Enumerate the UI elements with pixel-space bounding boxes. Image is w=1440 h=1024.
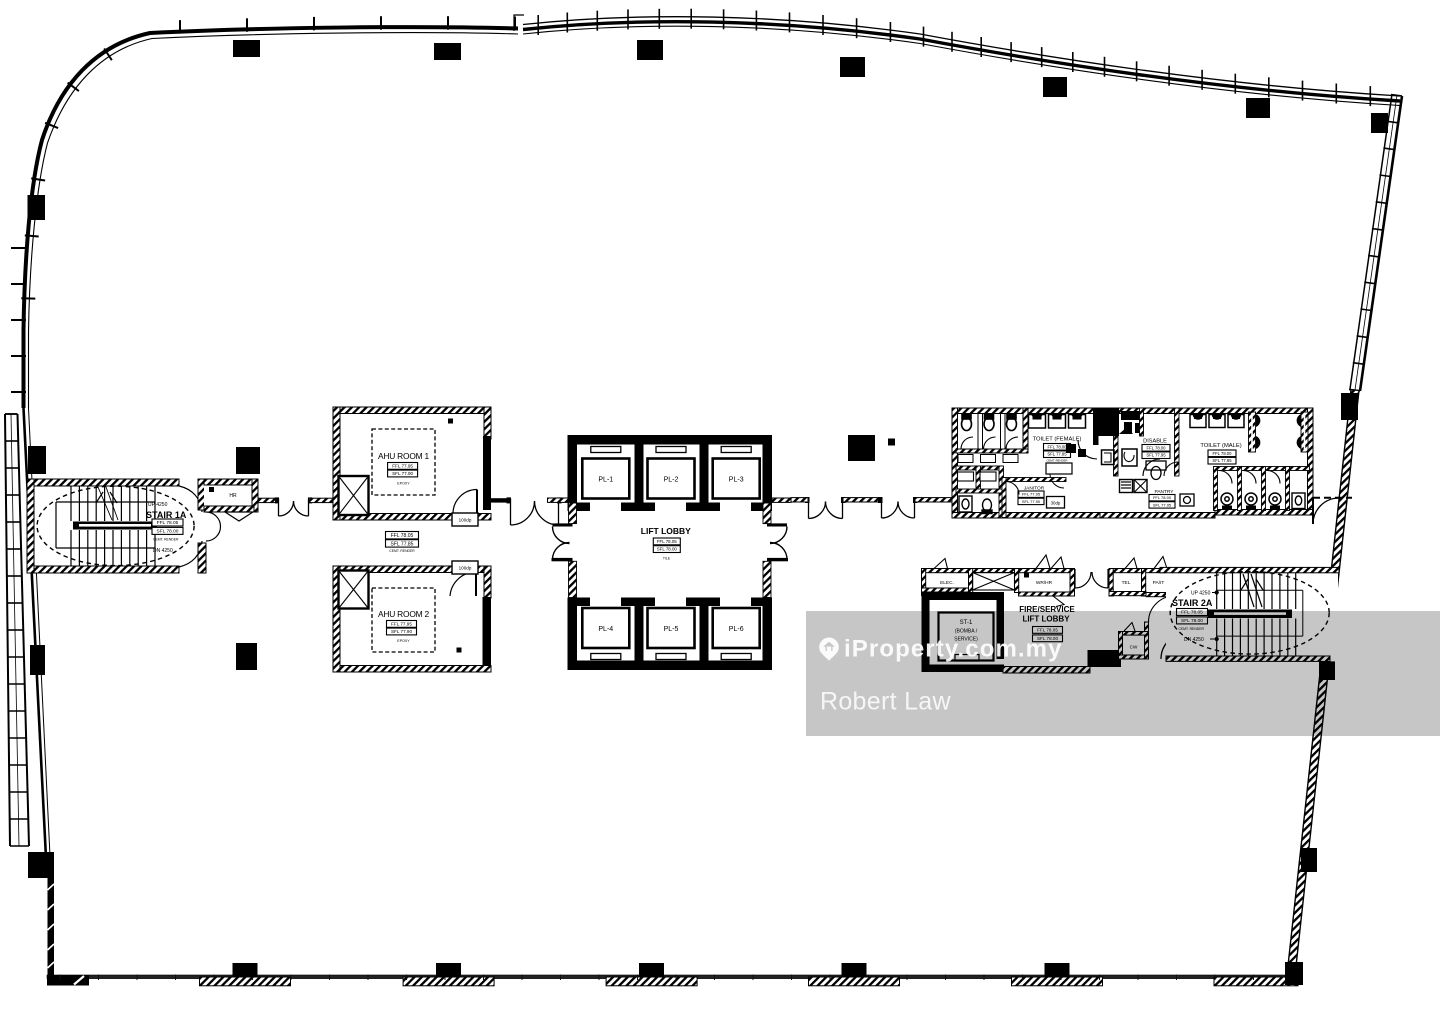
svg-text:TOILET (FEMALE): TOILET (FEMALE) — [1033, 437, 1082, 443]
svg-text:SFL 77.90: SFL 77.90 — [1022, 499, 1041, 504]
svg-text:FFL 78.00: FFL 78.00 — [1147, 445, 1167, 450]
svg-text:CEMT. RENDER: CEMT. RENDER — [389, 549, 415, 553]
svg-text:AHU ROOM 1: AHU ROOM 1 — [378, 451, 430, 461]
svg-text:EPOXY: EPOXY — [397, 639, 410, 643]
svg-text:PL-3: PL-3 — [729, 477, 744, 484]
svg-text:SFL 77.85: SFL 77.85 — [1212, 458, 1232, 463]
svg-text:100dp: 100dp — [459, 566, 472, 571]
svg-text:EPOXY: EPOXY — [397, 482, 410, 486]
svg-text:SFL 77.85: SFL 77.85 — [1047, 452, 1067, 457]
svg-text:SFL 78.00: SFL 78.00 — [157, 529, 179, 535]
svg-text:HR: HR — [229, 493, 237, 499]
svg-text:FFL 78.00: FFL 78.00 — [1153, 495, 1172, 500]
svg-text:100dp: 100dp — [459, 518, 472, 523]
svg-text:ELEC.: ELEC. — [940, 580, 954, 586]
svg-text:TEL: TEL — [1122, 580, 1131, 586]
svg-text:TOILET (MALE): TOILET (MALE) — [1200, 443, 1241, 449]
svg-text:STAIR 2A: STAIR 2A — [1172, 598, 1213, 608]
svg-text:FFL 78.05: FFL 78.05 — [391, 533, 414, 539]
svg-text:LIFT LOBBY: LIFT LOBBY — [641, 526, 691, 536]
svg-text:PL-6: PL-6 — [729, 626, 744, 633]
svg-text:24dp: 24dp — [984, 458, 992, 462]
svg-text:DN 4250: DN 4250 — [153, 548, 173, 554]
svg-text:24dp: 24dp — [961, 458, 969, 462]
svg-text:Robert Law: Robert Law — [820, 688, 951, 716]
svg-text:DISABLE: DISABLE — [1143, 439, 1167, 445]
svg-text:FFL 77.95: FFL 77.95 — [392, 464, 413, 469]
svg-text:FFL 77.95: FFL 77.95 — [391, 622, 412, 627]
svg-text:FFL 78.05: FFL 78.05 — [157, 520, 179, 526]
svg-text:SFL 77.90: SFL 77.90 — [391, 629, 412, 634]
svg-text:30dp: 30dp — [1051, 501, 1061, 506]
svg-text:CEMT. RENDER: CEMT. RENDER — [1047, 459, 1068, 463]
svg-text:SFL 77.95: SFL 77.95 — [1146, 453, 1166, 458]
svg-text:PA/IT: PA/IT — [1153, 580, 1165, 586]
svg-text:SFL 77.95: SFL 77.95 — [1153, 502, 1172, 507]
svg-text:FFL 78.05: FFL 78.05 — [657, 539, 677, 544]
svg-text:PL-4: PL-4 — [598, 626, 613, 633]
svg-text:TILE: TILE — [663, 557, 671, 561]
svg-text:iProperty.com.my: iProperty.com.my — [844, 636, 1063, 663]
svg-text:AHU ROOM 2: AHU ROOM 2 — [378, 609, 430, 619]
svg-text:24dp: 24dp — [984, 475, 994, 480]
svg-text:SFL 77.90: SFL 77.90 — [392, 471, 413, 476]
svg-text:24dp: 24dp — [1006, 458, 1014, 462]
svg-text:UP 4250: UP 4250 — [148, 502, 168, 508]
svg-text:PL-5: PL-5 — [664, 626, 679, 633]
svg-text:24dp: 24dp — [961, 475, 971, 480]
svg-text:SFL 77.85: SFL 77.85 — [391, 541, 414, 547]
svg-text:CEMT. RENDER: CEMT. RENDER — [153, 538, 179, 542]
svg-text:UP 4250: UP 4250 — [1191, 591, 1211, 597]
svg-text:WR/HR: WR/HR — [1036, 580, 1053, 586]
svg-text:FFL 77.95: FFL 77.95 — [1022, 492, 1041, 497]
svg-text:FFL 78.00: FFL 78.00 — [1213, 451, 1233, 456]
svg-text:PL-2: PL-2 — [664, 477, 679, 484]
svg-text:SFL 78.00: SFL 78.00 — [657, 547, 678, 552]
svg-text:PL-1: PL-1 — [598, 477, 613, 484]
svg-text:FFL 78.00: FFL 78.00 — [1048, 444, 1068, 449]
